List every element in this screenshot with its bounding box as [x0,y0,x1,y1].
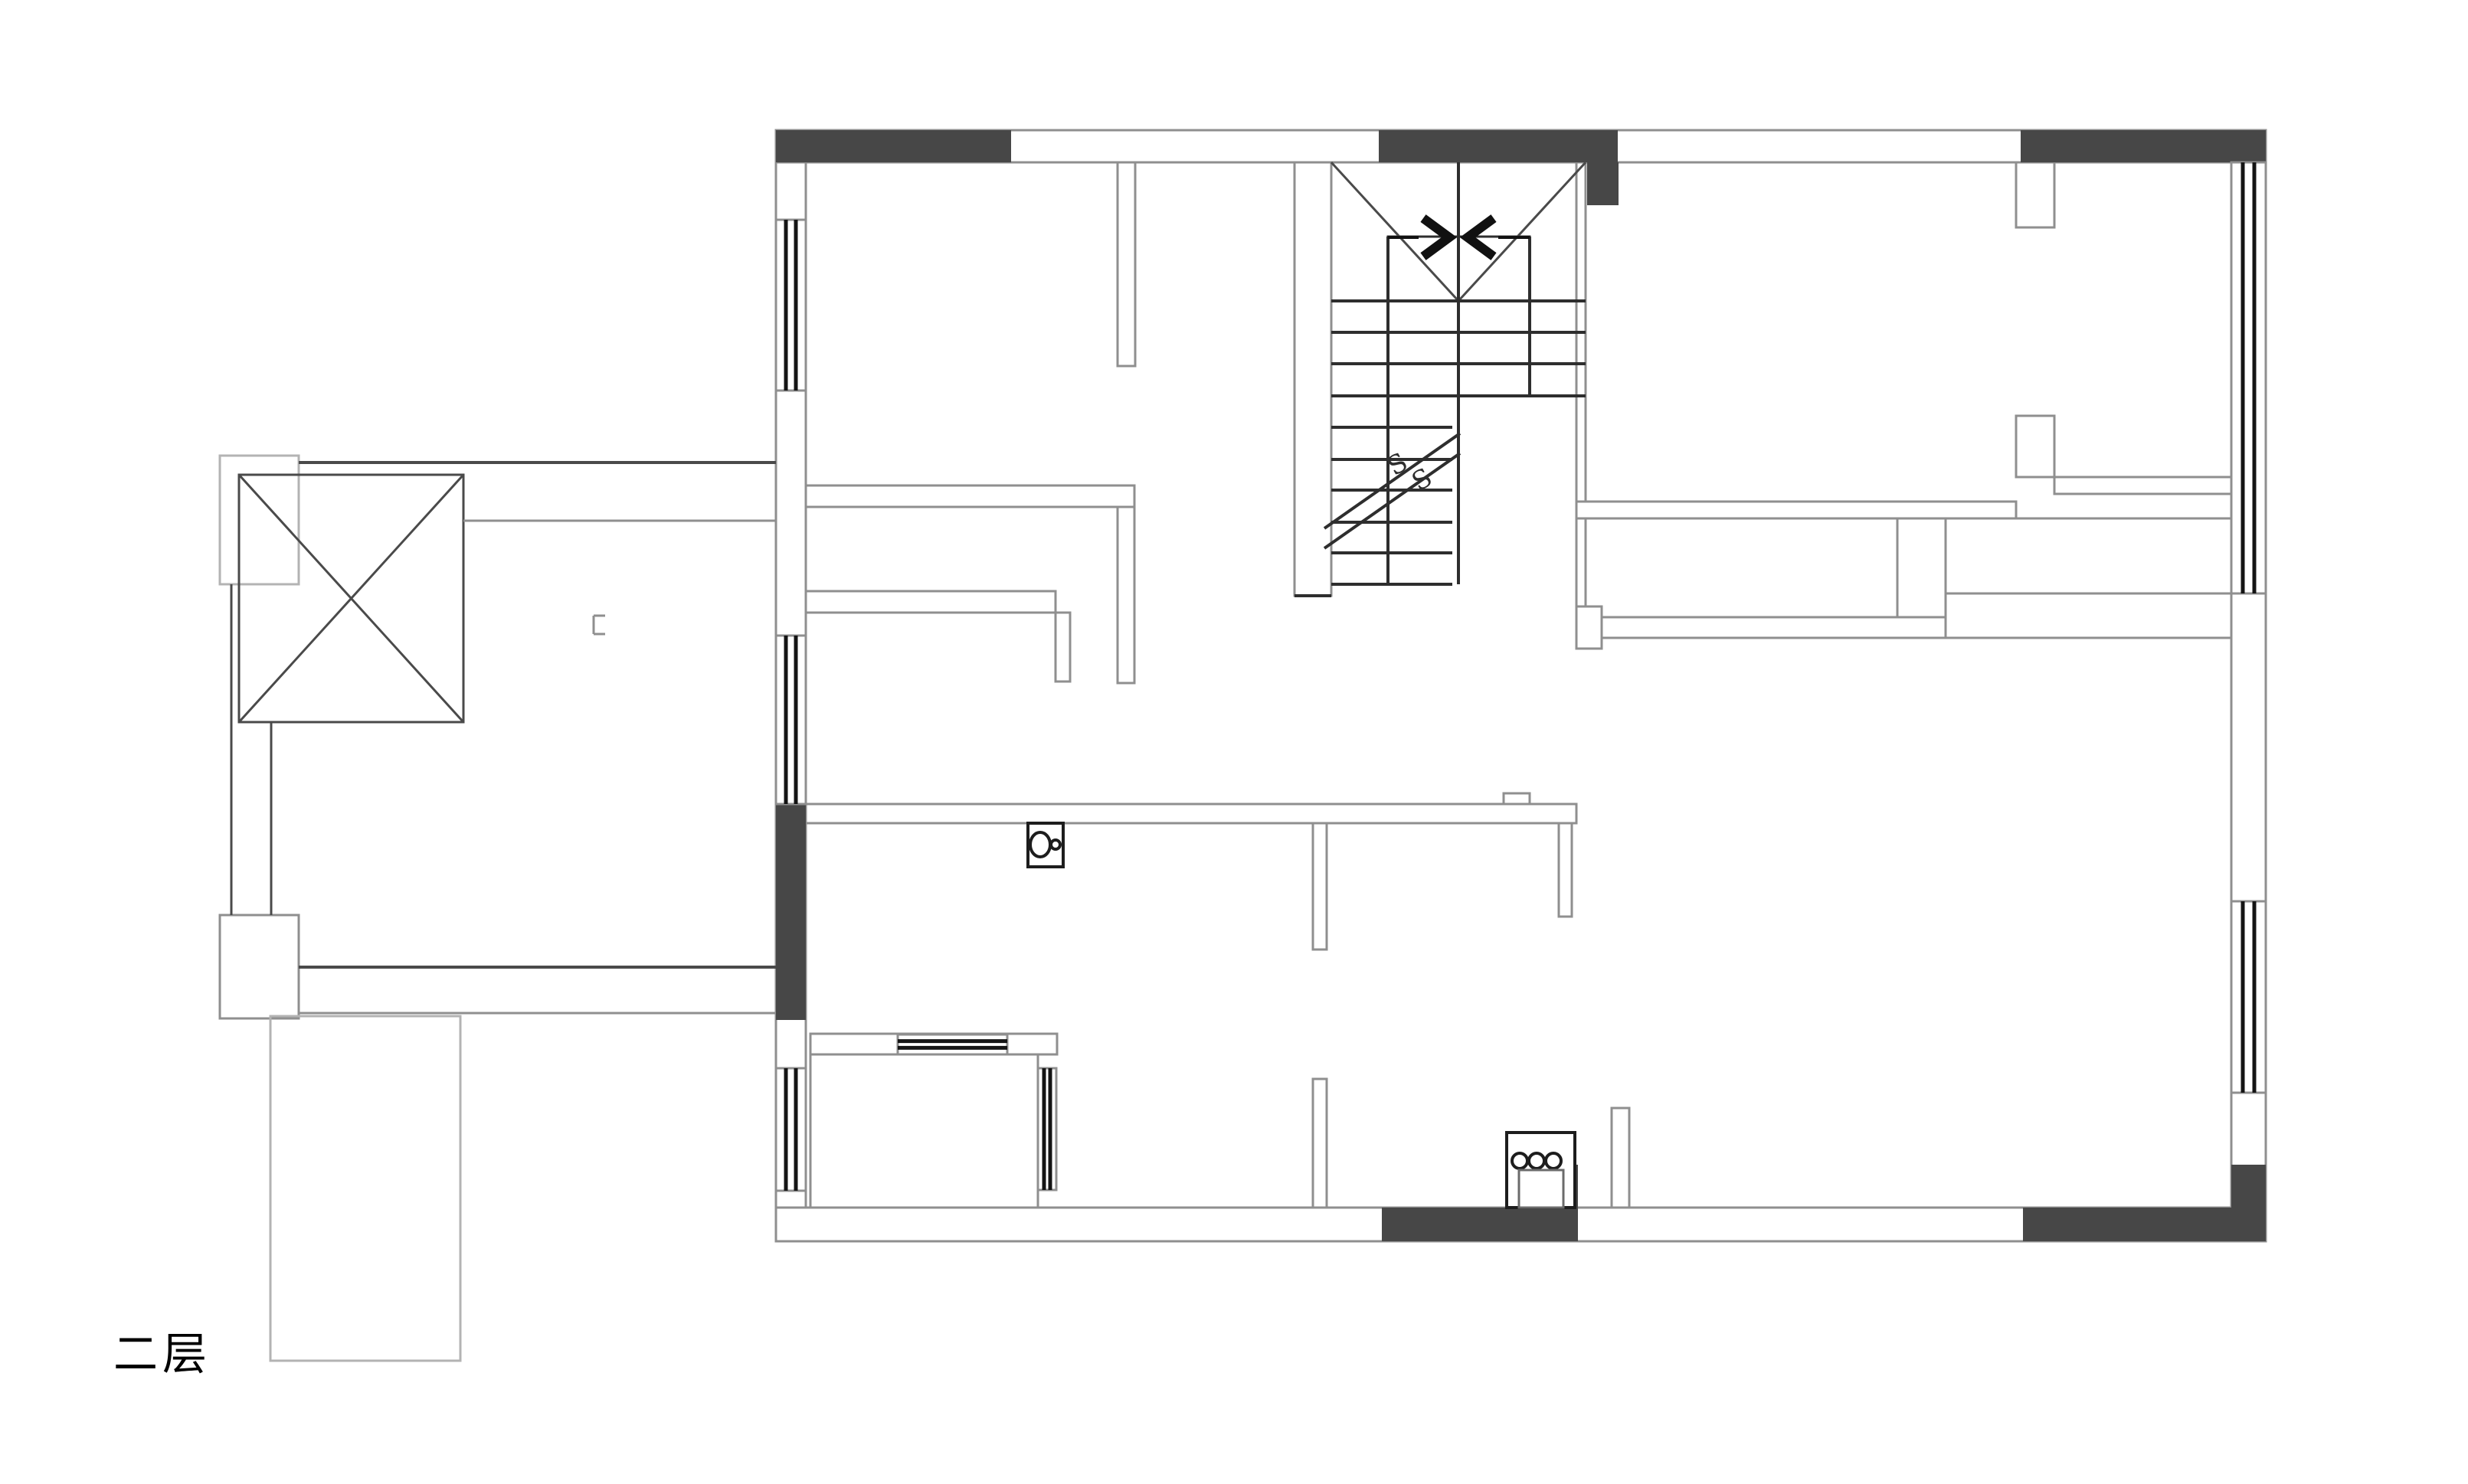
wall-band [2016,162,2054,227]
window-frame [2231,901,2266,1093]
wall-band [1897,518,1946,617]
floor-plan-page: SS二层 [0,0,2468,1484]
wall-band [1313,823,1327,950]
wall-band [806,804,1576,823]
wall-band [806,591,1056,613]
wall-band [1612,1108,1629,1208]
window-frame [776,636,806,804]
wall-band [1118,162,1135,366]
wall-band [1559,823,1572,917]
wall-band [2054,477,2231,494]
dark-wall-segment [776,805,806,1020]
window-frame [776,1068,806,1191]
wall-band [1576,502,2016,518]
dark-wall-segment [1379,130,1618,162]
window-frame [898,1035,1007,1054]
cooktop-inner [1519,1170,1563,1208]
wall-band [1504,793,1530,804]
floor-label: 二层 [113,1329,211,1379]
dark-wall-segment [2023,1208,2266,1241]
wall-band [2016,416,2054,477]
wall-band [1295,162,1331,596]
wall-band [1576,606,1602,649]
window-frame [2231,162,2266,593]
wall-band [1313,1079,1327,1208]
wall-band [1056,613,1070,682]
window-frame [1038,1068,1056,1190]
wall-band [1602,617,1946,638]
toilet [1028,823,1063,867]
dark-wall-segment [2021,130,2266,162]
dark-wall-segment [776,130,1011,162]
wall-band [806,485,1134,507]
wall-band [1576,162,1586,619]
window-frame [776,220,806,391]
wall-band [1118,507,1134,683]
plan-background [0,0,2468,1484]
floor-plan: SS二层 [0,0,2468,1484]
dark-wall-segment [1587,162,1619,205]
wall-band [1946,593,2231,638]
dark-wall-segment [1382,1208,1578,1241]
